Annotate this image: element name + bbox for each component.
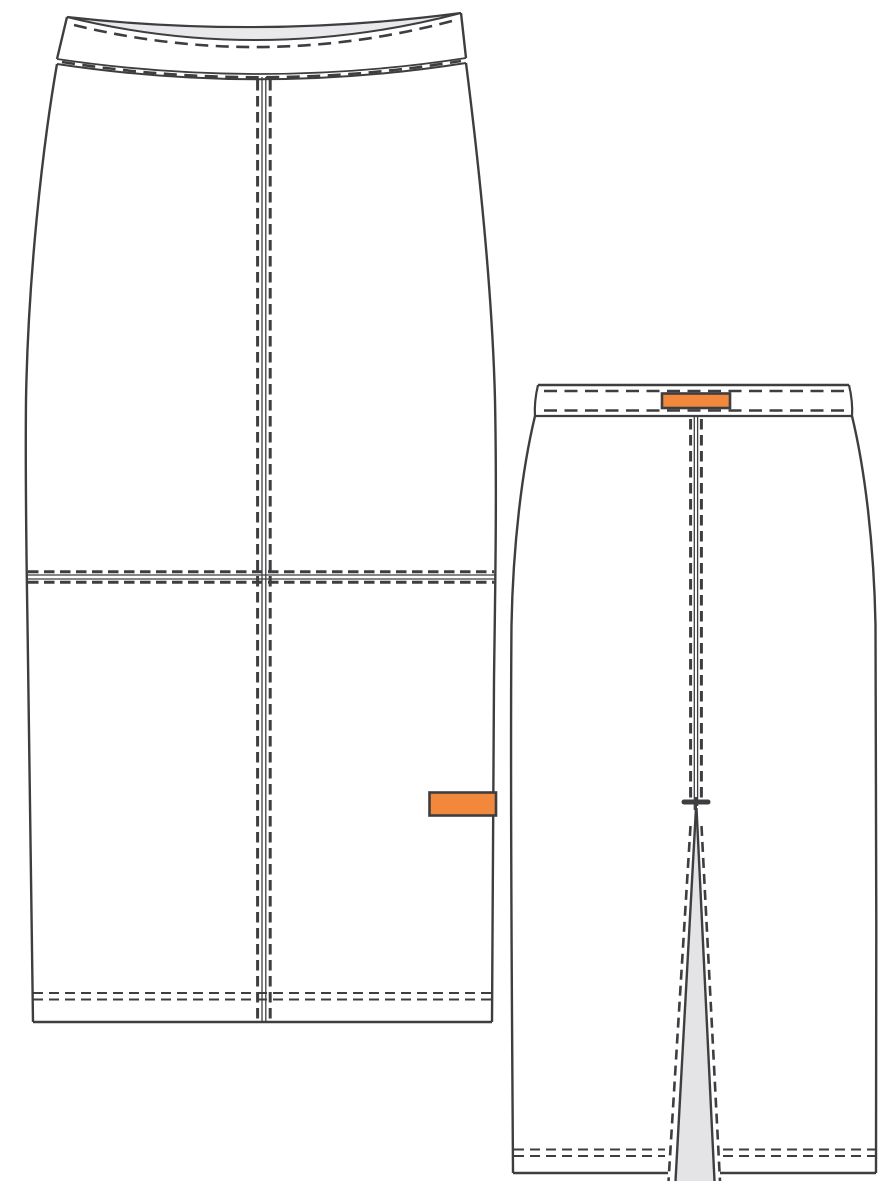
back-waistband-left-edge bbox=[535, 385, 538, 416]
front-waistband-left-edge bbox=[57, 17, 67, 59]
front-side-seam-right bbox=[466, 63, 496, 1022]
back-view bbox=[511, 385, 876, 1181]
front-side-seam-label bbox=[430, 793, 497, 816]
front-side-seam-left bbox=[26, 64, 57, 1022]
back-waistband-label bbox=[662, 394, 730, 409]
front-waistband-right-edge bbox=[461, 13, 466, 58]
back-waistband-right-edge bbox=[849, 385, 852, 416]
back-side-seam-right bbox=[852, 416, 876, 1173]
front-view bbox=[26, 13, 496, 1022]
back-side-seam-left bbox=[511, 416, 535, 1173]
pencil-skirt-flat-drawing bbox=[0, 0, 887, 1182]
technical-flat-canvas bbox=[0, 0, 887, 1182]
